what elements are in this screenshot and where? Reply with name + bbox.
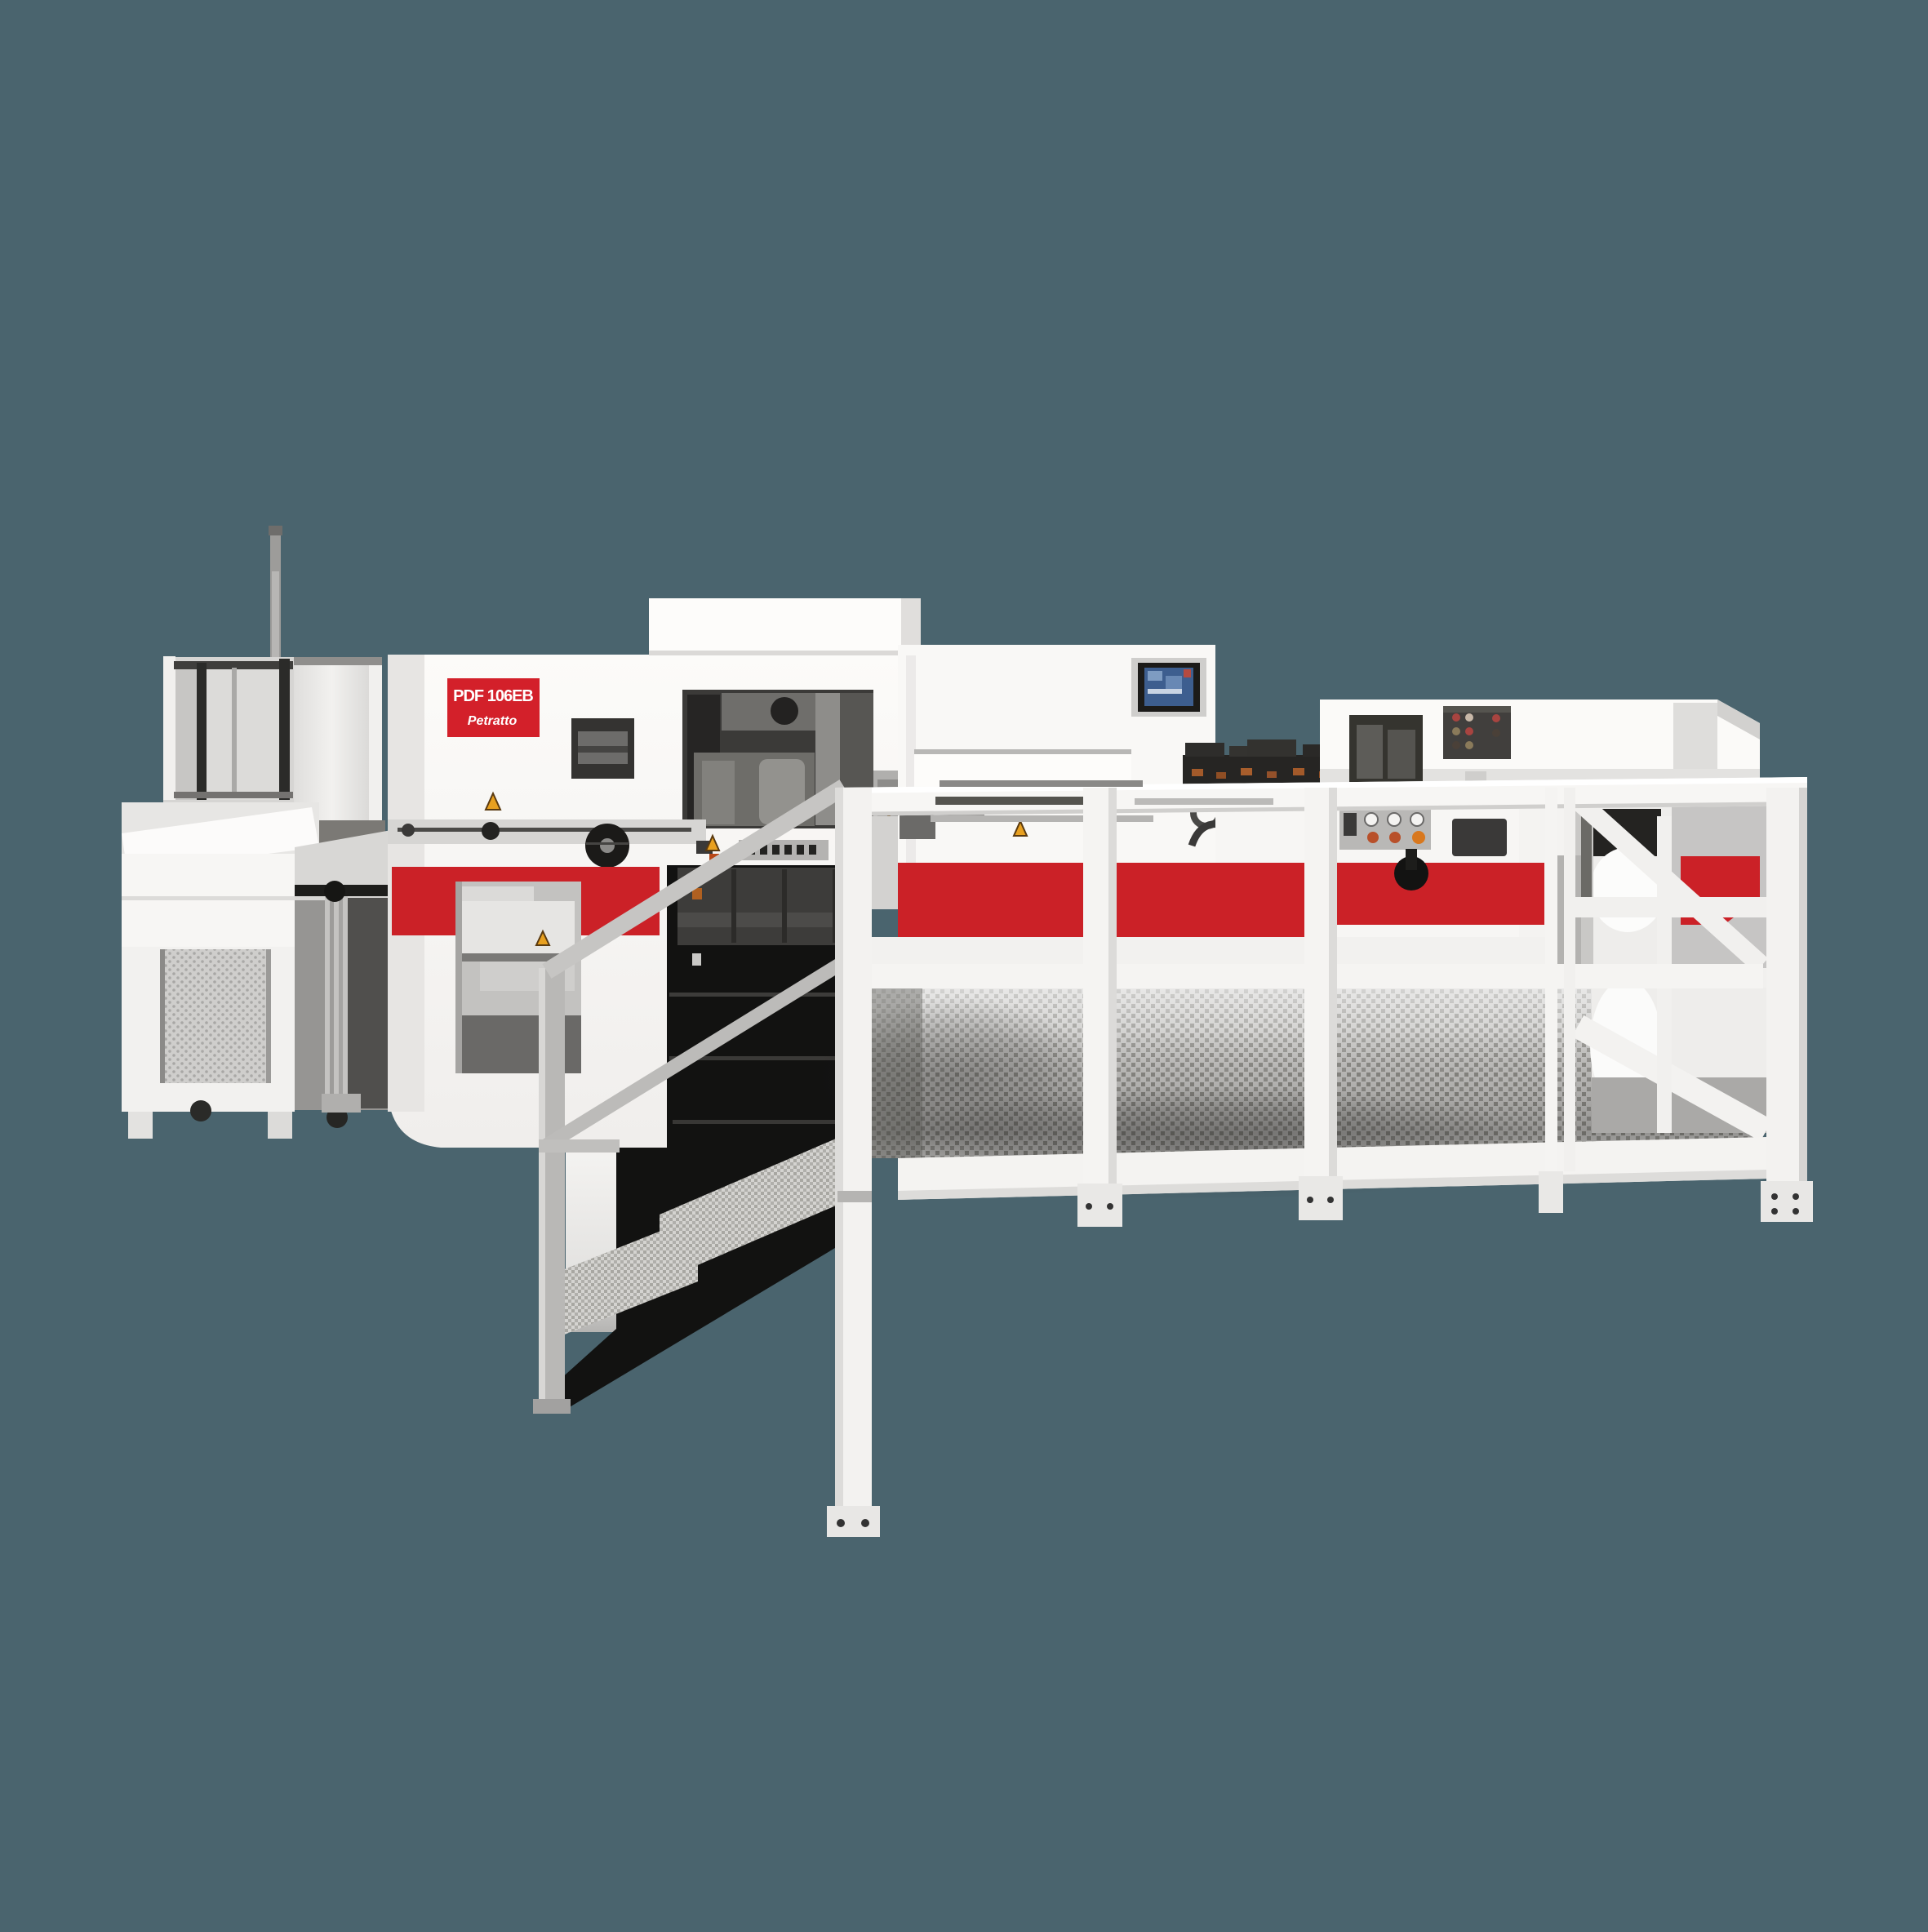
svg-text:Petratto: Petratto (468, 714, 518, 728)
svg-text:PDF 106EB: PDF 106EB (453, 687, 533, 705)
